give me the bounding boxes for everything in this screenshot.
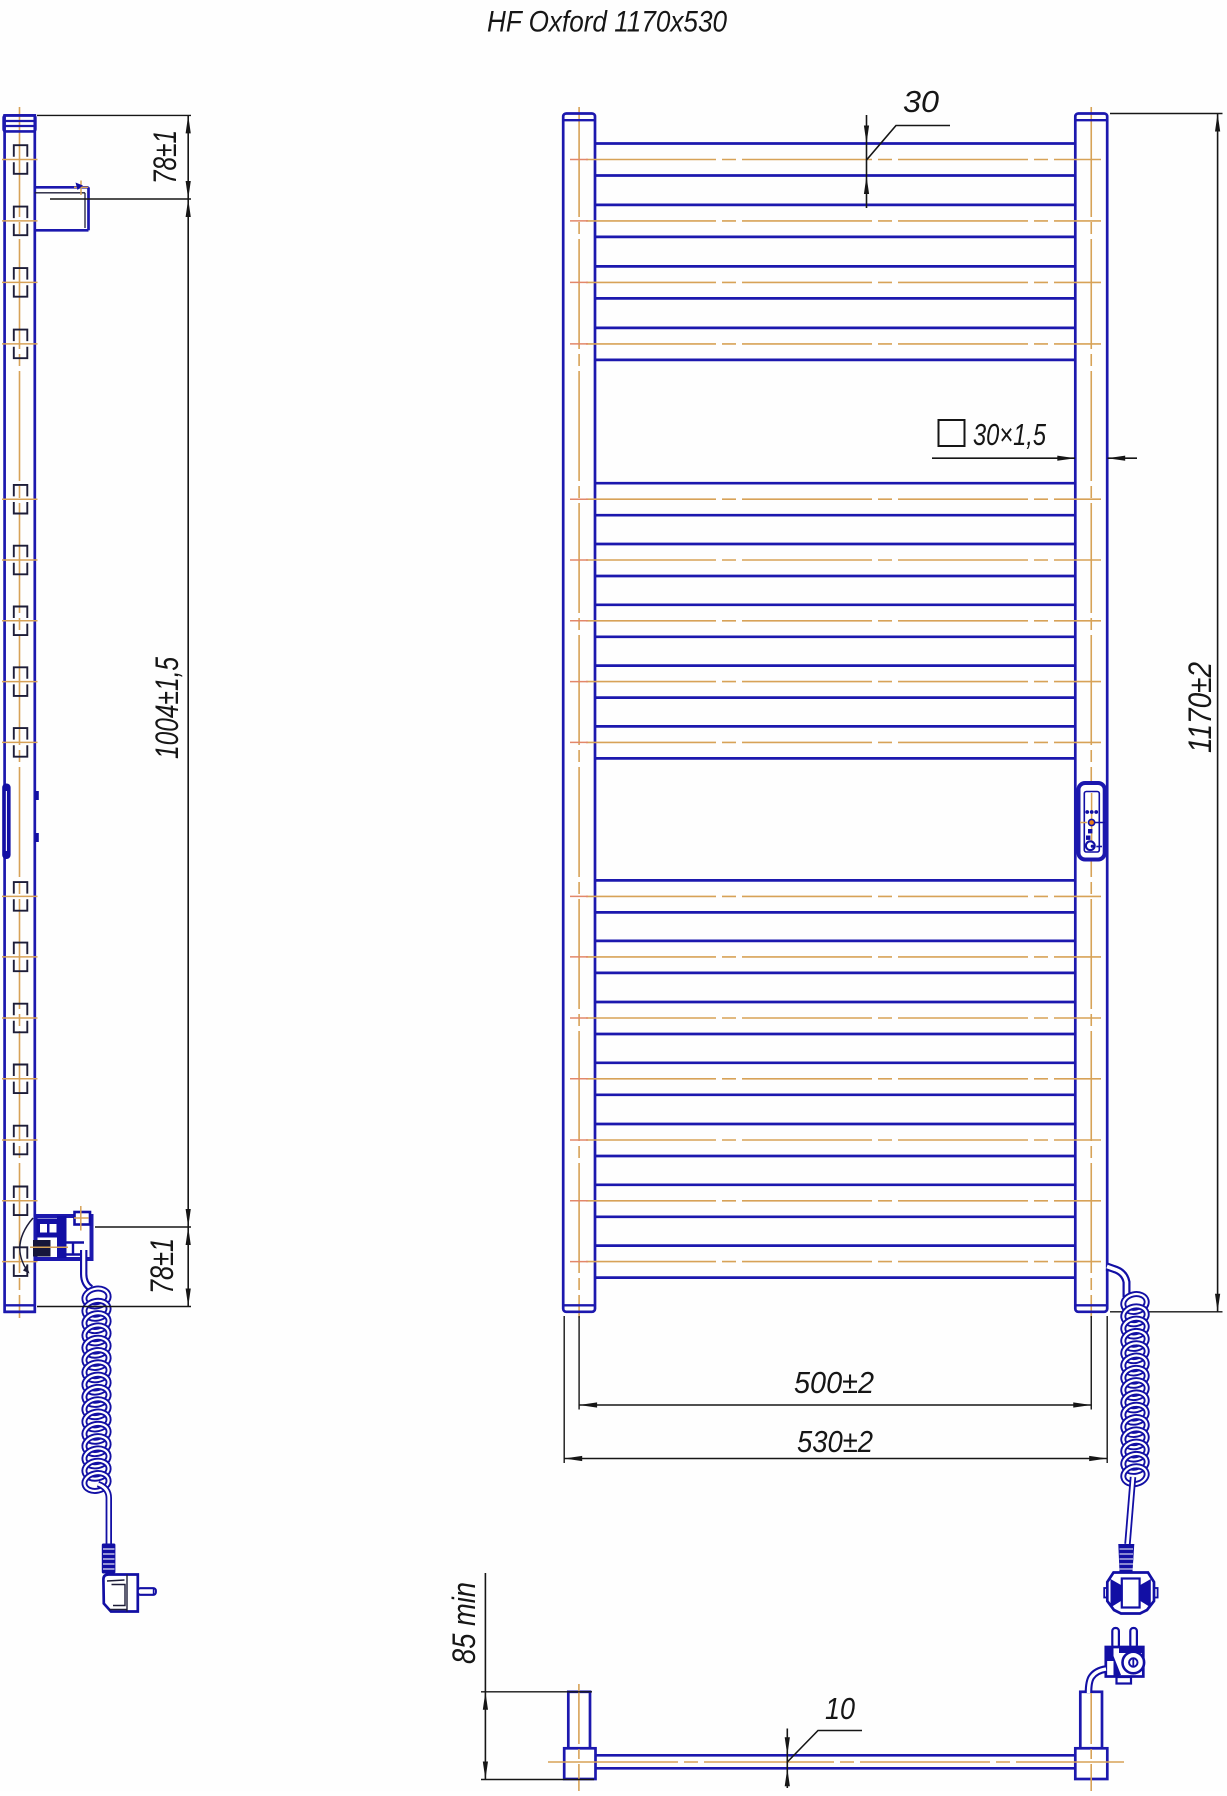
svg-text:500±2: 500±2 [794,1365,874,1400]
svg-text:1004±1,5: 1004±1,5 [149,657,185,759]
svg-text:30: 30 [903,84,939,119]
svg-text:85 min: 85 min [446,1582,482,1664]
svg-text:1170±2: 1170±2 [1182,662,1218,753]
svg-text:30×1,5: 30×1,5 [973,417,1047,452]
svg-text:78±1: 78±1 [147,130,183,184]
svg-text:530±2: 530±2 [797,1424,873,1459]
svg-text:10: 10 [825,1691,855,1726]
svg-text:HF Oxford 1170x530: HF Oxford 1170x530 [487,6,727,39]
svg-text:78±1: 78±1 [144,1238,180,1294]
